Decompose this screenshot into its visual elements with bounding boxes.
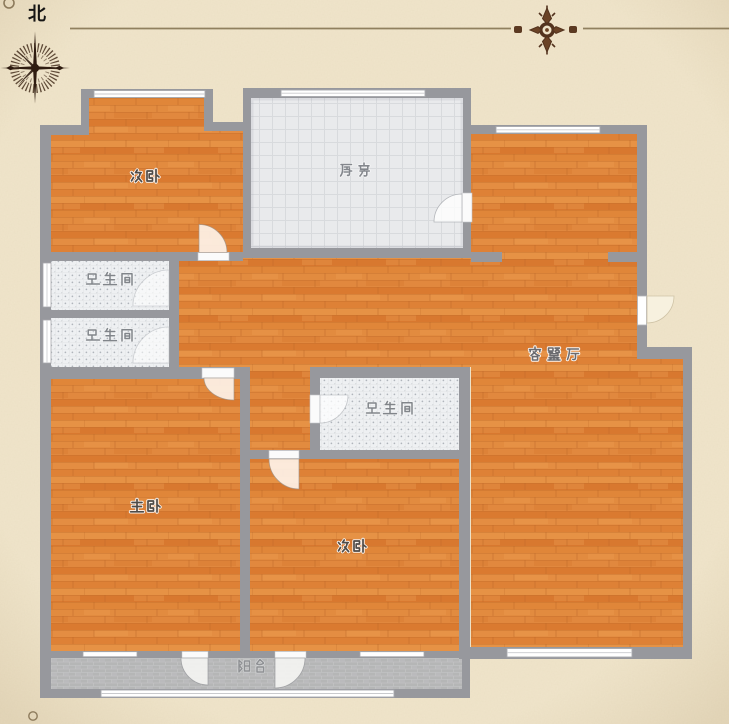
svg-text:北: 北 — [28, 4, 46, 24]
